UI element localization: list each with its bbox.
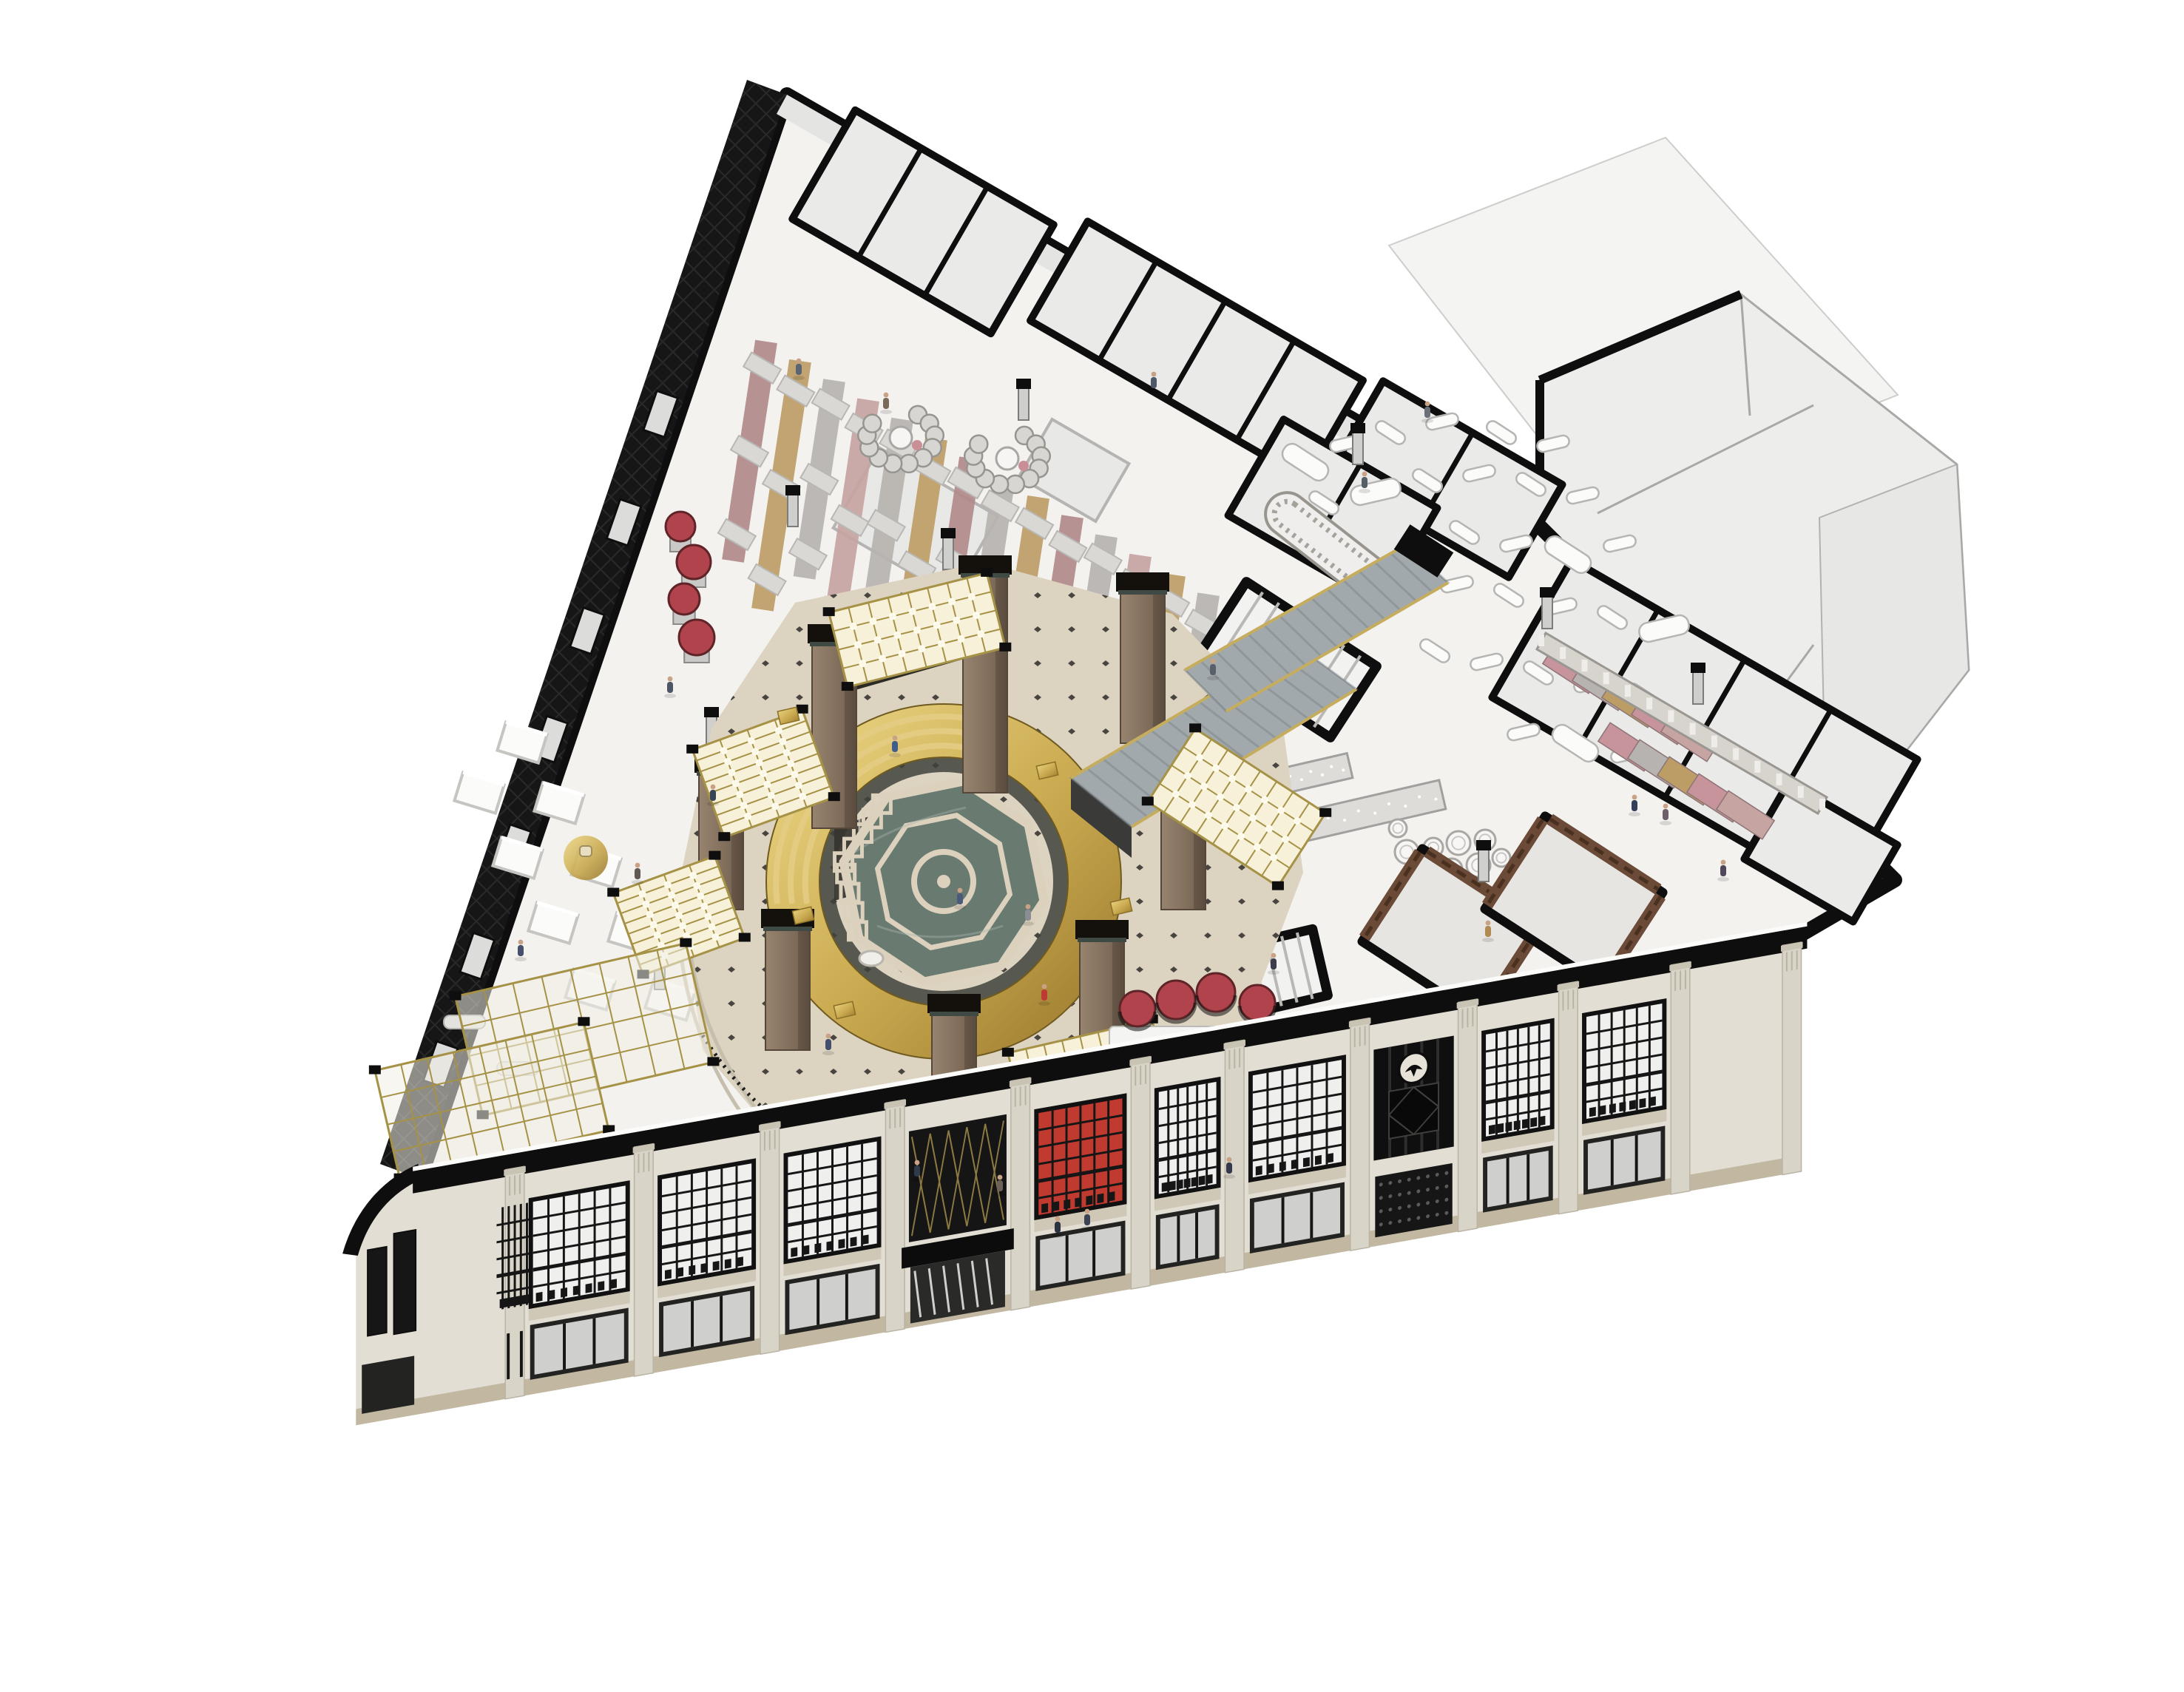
shadow [1081,1226,1093,1231]
totem-body [1693,671,1703,704]
vitrine-post [1142,796,1154,805]
grille [1649,1097,1656,1107]
pylon-shade [995,575,1007,793]
glow-lamp [859,660,866,667]
grille [665,1269,672,1279]
grille [713,1261,720,1271]
head [518,940,524,945]
body [635,868,640,879]
vitrine-post [828,792,840,801]
glow-lamp [869,617,876,625]
pylon-band [1118,590,1167,595]
shadow [1482,938,1494,942]
head [1362,472,1367,477]
shadow [1207,676,1219,680]
body [1151,377,1157,388]
corner-window [394,1230,416,1334]
head [826,1034,831,1039]
shelf-stack [1798,786,1804,798]
glow-lamp [744,813,751,820]
pink-chair [1018,461,1029,471]
body [1084,1214,1090,1225]
glow-lamp [1294,817,1301,825]
grille [1256,1165,1262,1176]
glow-lamp [1254,843,1261,850]
red-sphere [1120,991,1155,1026]
body [1663,809,1669,820]
grille [1514,1120,1521,1131]
grille [512,1296,518,1307]
corner-storefront [362,1356,414,1413]
shadow [994,1192,1006,1197]
pylon-shade [1153,592,1165,743]
head [1085,1209,1090,1214]
shadow [954,905,966,910]
glow-lamp [679,922,686,930]
cafe-table [996,447,1018,470]
drum-stool [863,415,881,433]
glow-lamp [1282,836,1289,843]
grille [506,1297,513,1307]
pilaster-shaft [1458,999,1478,1231]
head [711,785,716,790]
facade-bay-grid [1248,1055,1346,1253]
body [1226,1163,1232,1174]
grille [561,1287,567,1298]
marble-pylon [1116,572,1169,743]
corner-window [368,1247,387,1336]
red-display-top [677,545,711,579]
vitrine-post [823,607,835,616]
body [1485,926,1491,937]
ornate-panel [1389,1083,1438,1139]
shadow [793,376,805,380]
glow-lamp [689,872,697,879]
head [1271,953,1277,958]
grille [1086,1195,1092,1205]
facade-bay-grid [1481,1018,1555,1213]
shadow [664,694,676,698]
grille [1506,1122,1512,1132]
shadow [1148,389,1160,393]
vitrine-post [680,938,692,947]
glow-lamp [668,891,675,899]
grille [802,1245,809,1256]
grille [548,1290,555,1300]
head [893,736,898,741]
glow-lamp [1196,754,1203,761]
vitrine-post [739,933,751,941]
head [797,359,802,364]
grille [791,1247,797,1257]
drum-stool [900,455,918,473]
glow-lamp [664,881,672,888]
pilaster [1010,1077,1032,1310]
facade-bay-grid [1154,1077,1221,1270]
glow-lamp [958,635,965,643]
glow-lamp [763,781,771,788]
head [1055,1216,1061,1222]
glow-lamp [899,650,906,657]
pilaster [1129,1056,1152,1289]
stone-urn [859,951,883,966]
grille [1041,1203,1048,1214]
pylon-band [1078,938,1126,942]
glow-lamp [704,913,711,920]
glow-lamp [1245,785,1252,793]
grille [1539,1116,1546,1126]
glow-lamp [1184,772,1191,779]
grille [1199,1176,1206,1186]
body [1720,865,1726,876]
shadow [1660,821,1671,825]
vitrine-post [999,643,1011,652]
glow-lamp [740,802,748,809]
pylon-shade [798,928,810,1050]
grille [851,1236,857,1247]
glow-lamp [736,791,743,798]
shelf-stack [1668,710,1674,722]
vitrine-post [1272,881,1284,890]
pylon-capital [927,994,981,1013]
shadow [1052,1234,1064,1238]
pilaster [1457,999,1479,1232]
pilaster-shaft [1559,981,1578,1214]
glow-lamp [771,802,779,810]
rendering-canvas [0,0,2184,1692]
marble-pylon [761,909,814,1050]
grille [1327,1153,1333,1163]
shadow [889,753,901,757]
facade-bay-grid [784,1136,882,1335]
head [1632,795,1637,800]
shadow [880,410,892,414]
glow-lamp [918,645,925,652]
glow-lamp [748,737,755,745]
glow-lamp [672,901,679,909]
pilaster-shaft [1350,1018,1370,1251]
vitrine-post [842,682,853,691]
drum-stool [970,436,987,453]
head [1721,860,1726,865]
pilaster-shaft [1782,942,1802,1174]
totem-cap [1540,587,1555,598]
glow-lamp [720,747,728,754]
body [997,1180,1003,1191]
shelf-stack [1819,799,1825,811]
glow-lamp [675,912,683,919]
pilaster [1349,1018,1371,1251]
pilaster-shaft [1011,1077,1030,1310]
head [1042,984,1047,989]
glow-lamp [1217,793,1224,801]
scene-root [350,80,1969,1427]
pilaster [1669,961,1691,1194]
grille [839,1239,845,1249]
head [998,1175,1003,1180]
grille [1191,1177,1198,1187]
glow-lamp [1249,814,1257,822]
grille [1599,1105,1606,1115]
shadow [1038,1001,1050,1006]
facade-bay-canopy [902,1113,1014,1325]
glow-lamp [700,903,708,910]
shadow [632,880,643,884]
body [1424,407,1430,418]
grille [1489,1125,1495,1135]
grille [1279,1161,1286,1171]
pilaster [759,1121,781,1354]
glow-lamp [948,598,956,605]
grille [1303,1157,1310,1168]
pilaster [884,1100,906,1333]
body [1632,800,1637,811]
cafe-table [890,427,912,449]
glow-lamp [732,780,740,788]
body [883,398,889,409]
glow-lamp [909,608,916,615]
totem-body [1542,596,1552,629]
glow-lamp [1270,854,1277,862]
facade-bay-ornate [1373,1036,1453,1238]
glow-lamp [779,738,786,745]
body [796,364,802,375]
shadow [1421,419,1433,423]
grille [610,1279,617,1289]
glow-lamp [795,782,802,789]
grille [826,1241,833,1251]
grille [1629,1100,1636,1110]
glow-lamp [1233,804,1240,811]
shadow [707,802,719,806]
body [1041,989,1047,1001]
glow-lamp [1228,775,1236,782]
body [825,1039,831,1050]
glow-lamp [693,882,700,890]
glow-lamp [1277,807,1285,814]
red-display-top [666,512,695,541]
head [1211,659,1216,664]
glow-lamp [1172,791,1180,798]
glow-lamp [708,923,715,930]
glow-lamp [768,792,775,799]
pylon-band [930,1012,978,1016]
body [957,893,963,904]
pilaster-shaft [760,1122,780,1354]
pilaster-shaft [635,1144,654,1376]
grille [1589,1107,1596,1117]
pilaster-shaft [1225,1040,1244,1272]
round-table [1389,819,1407,837]
glow-lamp [1205,811,1212,819]
grille [814,1243,821,1253]
grille [1052,1201,1059,1211]
red-sphere [1240,985,1275,1021]
facade-bay-grid [657,1158,756,1357]
glow-lamp [913,626,921,634]
grille [1639,1098,1646,1109]
totem-cap [785,485,800,495]
totem-cap [941,528,956,538]
facade-bay-red [1034,1093,1126,1291]
shadow [911,1177,923,1182]
glow-lamp [889,612,896,620]
head [1486,921,1491,926]
body [710,790,716,801]
lounge-chair [580,846,592,856]
totem-body [788,494,798,527]
shelf-stack [1711,736,1717,748]
pylon-capital [1116,572,1169,592]
drum-stool [1007,476,1024,493]
glow-lamp [1200,782,1208,790]
shadow [1359,489,1370,493]
glow-lamp [977,630,984,637]
totem-cap [1016,379,1031,389]
grille [598,1281,604,1291]
grille [1609,1103,1616,1114]
grille [862,1234,869,1245]
glow-lamp [928,603,936,610]
pylon-band [763,927,812,931]
glow-lamp [756,759,763,766]
totem-body [1478,849,1489,881]
glow-lamp [787,759,794,767]
body [1271,958,1277,969]
shelf-stack [1776,774,1782,785]
pilaster [1781,942,1803,1175]
glow-lamp [1265,825,1273,833]
grille [500,1299,507,1309]
vitrine-post [709,851,720,860]
storefront-glass [1160,1209,1215,1265]
totem-cap [1350,423,1365,433]
shelf-stack [1581,660,1587,671]
head [1663,804,1669,809]
glow-lamp [646,911,654,918]
glow-lamp [1261,796,1268,804]
glow-lamp [724,758,731,765]
head [635,863,640,868]
glow-lamp [654,931,661,938]
body [667,682,673,693]
grille [701,1263,708,1273]
glow-lamp [1221,822,1228,830]
pilaster-shaft [1131,1057,1150,1289]
grille [1291,1160,1298,1170]
head [958,888,963,893]
pilaster [633,1143,655,1376]
grille [1315,1155,1322,1165]
body [1055,1222,1061,1233]
shelf-stack [1646,697,1652,709]
shadow [1629,812,1640,816]
shelf-stack [1733,748,1739,760]
glow-lamp [775,727,782,734]
head [1425,402,1430,407]
grille [518,1295,524,1305]
glow-lamp [643,901,650,908]
shelf-stack [1754,761,1760,773]
glow-lamp [854,641,862,649]
glow-lamp [1237,833,1245,840]
grille [737,1256,743,1267]
grille [1522,1119,1529,1129]
red-display-top [679,620,714,655]
grille [1206,1174,1213,1185]
red-display-top [669,583,700,615]
head [1026,904,1031,910]
totem-body [943,537,953,569]
shadow [1268,970,1279,975]
glow-lamp [874,636,882,643]
grille [689,1265,695,1276]
glow-lamp [760,770,767,777]
centre-dot [937,875,950,888]
glow-lamp [973,612,980,619]
vitrine-post [686,745,698,754]
facade-bay-grid [529,1180,630,1380]
body [1025,910,1031,921]
glow-lamp [791,771,799,778]
grille [1075,1197,1081,1208]
grille [725,1259,731,1269]
gold-round-rug [564,836,608,880]
shelf-stack [1603,672,1609,684]
shadow [1223,1174,1235,1179]
red-sphere [1197,973,1235,1012]
head [668,677,673,682]
pilaster-shaft [1671,961,1690,1194]
shelf-stack [1625,685,1631,697]
glow-lamp [1212,765,1220,772]
shadow [515,957,527,961]
vitrine-post [1189,723,1201,732]
pylon-capital [1075,920,1129,939]
glow-lamp [933,621,941,629]
body [518,945,524,956]
vitrine-post [797,705,808,714]
grille [1184,1178,1191,1188]
grille [1162,1182,1169,1192]
head [1227,1157,1232,1163]
vitrine-post [1002,1048,1014,1057]
glow-lamp [783,749,791,757]
glow-lamp [893,632,901,639]
glow-lamp [650,921,657,928]
glow-lamp [879,655,886,663]
shadow [1717,877,1729,881]
glow-lamp [799,793,806,800]
head [1152,372,1157,377]
glow-lamp [850,623,857,630]
vitrine-post [578,1017,589,1026]
totem-body [1353,432,1363,464]
glow-lamp [639,890,646,898]
vitrine-post [607,888,619,897]
red-sphere [1157,981,1195,1019]
shadow [1022,921,1034,926]
totem-cap [1476,840,1491,850]
vitrine-post [1319,808,1331,817]
grille [536,1292,543,1302]
shadow [822,1051,834,1055]
grille [573,1285,580,1296]
vitrine-post [450,992,462,1001]
grille [1268,1163,1274,1174]
totem-body [1018,388,1029,420]
round-table [1447,831,1470,855]
